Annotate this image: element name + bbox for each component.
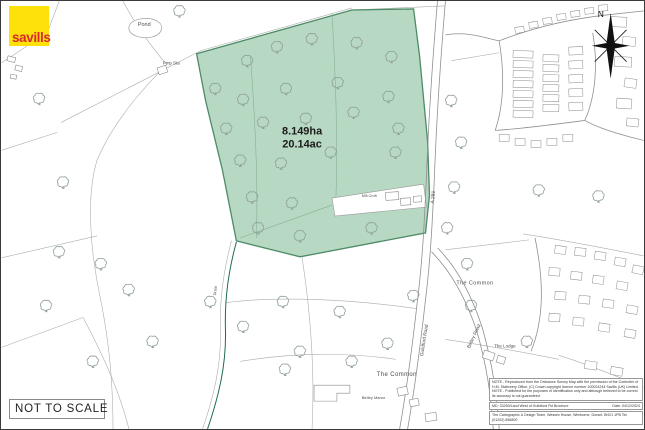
savills-logo-text: savills xyxy=(12,30,51,45)
birtley-road-label: Birtley Road xyxy=(466,323,483,349)
not-to-scale-box: NOT TO SCALE xyxy=(9,399,105,419)
site-plan-map: N 8.149ha 20.14ac Pond Pmp Sta A 281 Gui… xyxy=(1,1,644,429)
pump-station-label: Pmp Sta xyxy=(163,61,181,66)
plot-area-ha-label: 8.149ha xyxy=(282,125,323,137)
reference-row: MD: 33250/Land West of Guildford Rd Broc… xyxy=(489,402,643,411)
watercourse xyxy=(203,241,237,429)
site-plan-page: N 8.149ha 20.14ac Pond Pmp Sta A 281 Gui… xyxy=(0,0,645,430)
housing-estate xyxy=(499,5,644,377)
copyright-note-line1: NOTE - Reproduced from the Ordnance Surv… xyxy=(492,380,640,389)
the-common-south-label: The Common xyxy=(377,372,417,378)
cartography-credit: The Cartographic & Design Team, Wessex H… xyxy=(489,411,643,424)
plot-area-ac-label: 20.14ac xyxy=(282,138,322,150)
mill-property-label: Mill Croft xyxy=(362,194,378,198)
map-reference: MD: 33250/Land West of Guildford Rd Broc… xyxy=(492,404,568,409)
drain-label: Drain xyxy=(212,286,218,296)
north-label: N xyxy=(598,9,604,19)
map-date: Date: 04/12/2024 xyxy=(612,404,640,409)
pond-label: Pond xyxy=(138,22,151,28)
map-notes-box: NOTE - Reproduced from the Ordnance Surv… xyxy=(489,378,643,425)
savills-logo: savills xyxy=(9,6,49,46)
copyright-note-line2: NOTE - Published for the purposes of ide… xyxy=(492,389,640,398)
a281-road-label: A 281 xyxy=(430,190,437,203)
the-common-east-label: The Common xyxy=(456,281,493,287)
copyright-note: NOTE - Reproduced from the Ordnance Surv… xyxy=(489,378,643,401)
manor-label: Birtley Manor xyxy=(362,395,386,400)
the-lodge-label: The Lodge xyxy=(494,343,516,348)
